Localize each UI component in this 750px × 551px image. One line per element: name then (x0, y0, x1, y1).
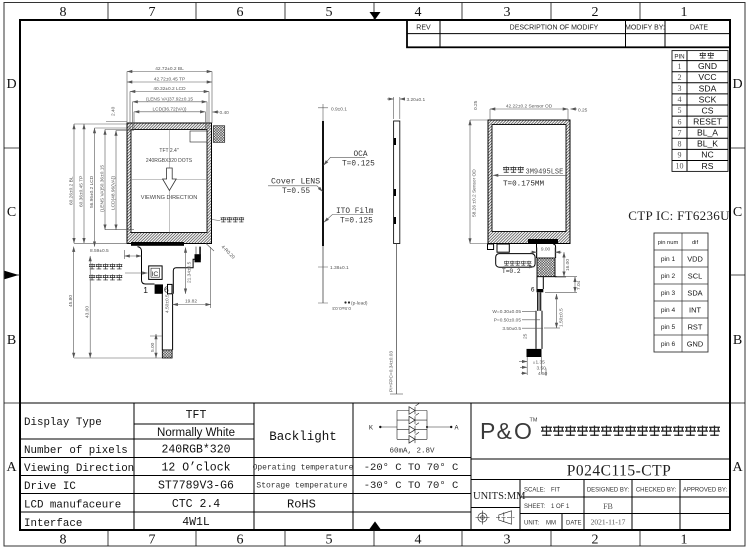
svg-text:2: 2 (592, 533, 599, 548)
svg-text:IC: IC (152, 271, 159, 278)
svg-text:4W1L: 4W1L (182, 516, 210, 529)
svg-text:0.5±0.03: 0.5±0.03 (332, 305, 351, 311)
svg-text:1 OF 1: 1 OF 1 (551, 504, 570, 510)
svg-text:A: A (455, 426, 459, 432)
svg-text:5: 5 (326, 5, 333, 20)
svg-text:0.25: 0.25 (473, 100, 479, 110)
svg-text:60mA, 2.8V: 60mA, 2.8V (389, 448, 435, 456)
svg-text:Display Type: Display Type (24, 417, 102, 429)
svg-text:42.22±0.2 Sensor OD: 42.22±0.2 Sensor OD (506, 103, 553, 109)
svg-text:12 O’clock: 12 O’clock (161, 462, 230, 475)
svg-text:3: 3 (504, 5, 511, 20)
svg-text:REV: REV (416, 25, 431, 32)
svg-text:DATE: DATE (566, 521, 582, 527)
svg-text:VCC: VCC (698, 72, 716, 82)
svg-text:-30° C TO 70° C: -30° C TO 70° C (364, 480, 459, 492)
svg-text:D: D (6, 77, 16, 92)
svg-text:0.40: 0.40 (220, 110, 230, 116)
svg-text:pin 3: pin 3 (661, 290, 676, 297)
svg-text:FIT: FIT (551, 488, 560, 494)
svg-text:21.34±0.5: 21.34±0.5 (187, 261, 193, 283)
svg-text:P=0.50±0.05: P=0.50±0.05 (494, 318, 522, 324)
svg-text:3.50: 3.50 (537, 365, 547, 371)
svg-text:1.50±0.5: 1.50±0.5 (559, 308, 565, 327)
svg-text:DATE: DATE (690, 25, 708, 32)
svg-text:T=0.125: T=0.125 (342, 161, 375, 169)
svg-text:LCD(36.72(VA)): LCD(36.72(VA)) (152, 106, 186, 112)
svg-text:BL_K: BL_K (697, 139, 718, 149)
svg-text:7: 7 (149, 5, 156, 20)
svg-text:DESCRIPTION OF MODIFY: DESCRIPTION OF MODIFY (510, 25, 599, 32)
svg-text:B: B (733, 333, 742, 348)
svg-text:INT: INT (689, 305, 701, 314)
svg-text:RoHS: RoHS (287, 498, 316, 512)
svg-text:GND: GND (698, 61, 717, 71)
svg-text:pin num: pin num (658, 240, 679, 246)
svg-text:56.96±0.2 LCD: 56.96±0.2 LCD (89, 175, 95, 208)
svg-text:8: 8 (678, 140, 682, 149)
svg-text:5.00: 5.00 (150, 342, 156, 352)
svg-text:VDD: VDD (687, 254, 703, 263)
svg-text:SCK: SCK (699, 94, 717, 104)
svg-text:P024C115-CTP: P024C115-CTP (567, 463, 671, 480)
svg-text:2: 2 (592, 5, 599, 20)
svg-text:5: 5 (678, 106, 682, 115)
svg-text:pin 1: pin 1 (661, 256, 676, 263)
svg-text:25: 25 (523, 333, 529, 339)
svg-text:BL_A: BL_A (697, 128, 718, 138)
svg-text:43.00: 43.00 (85, 306, 91, 318)
svg-text:5: 5 (326, 533, 333, 548)
svg-text:SCALE:: SCALE: (524, 488, 546, 494)
svg-text:B: B (7, 333, 16, 348)
svg-text:8: 8 (60, 533, 67, 548)
svg-text:4.50: 4.50 (538, 371, 548, 377)
svg-text:Normally White: Normally White (157, 427, 235, 439)
svg-text:SDA: SDA (699, 83, 717, 93)
svg-text:LCD(48.96(VA)): LCD(48.96(VA)) (111, 176, 117, 210)
svg-text:6: 6 (237, 5, 244, 20)
svg-text:T=0.55: T=0.55 (282, 188, 310, 196)
svg-text:1: 1 (678, 62, 682, 71)
svg-text:Viewing Direction: Viewing Direction (24, 463, 134, 475)
svg-text:3: 3 (678, 84, 682, 93)
svg-text:Interface: Interface (24, 518, 82, 530)
svg-text:0.9±0.1: 0.9±0.1 (331, 107, 347, 113)
svg-text:-20° C TO 70° C: -20° C TO 70° C (364, 462, 459, 474)
svg-text:NC: NC (701, 150, 713, 160)
svg-text:TFT: TFT (186, 409, 207, 422)
svg-text:1: 1 (681, 533, 688, 548)
svg-text:42.72±0.2 BL: 42.72±0.2 BL (155, 66, 184, 72)
svg-text:Drive IC: Drive IC (24, 481, 76, 493)
svg-text:240RGB*320: 240RGB*320 (161, 444, 230, 457)
svg-text:APPROVED BY:: APPROVED BY: (683, 488, 728, 494)
svg-text:Operating temperature: Operating temperature (253, 464, 354, 473)
svg-text:CTC 2.4: CTC 2.4 (172, 498, 220, 511)
svg-text:D: D (732, 77, 742, 92)
svg-text:RS: RS (702, 161, 714, 171)
svg-text:0.25: 0.25 (578, 107, 588, 113)
svg-text:60.26±0.2 BL: 60.26±0.2 BL (69, 176, 75, 205)
svg-text:4.50±0.5: 4.50±0.5 (165, 294, 171, 313)
svg-text:9.00: 9.00 (541, 247, 551, 253)
svg-text:C: C (733, 205, 742, 220)
svg-text:240RGBX320 DOTS: 240RGBX320 DOTS (146, 158, 193, 164)
svg-text:(LENS VA)50.36±0.15: (LENS VA)50.36±0.15 (100, 165, 106, 212)
svg-text:1.38±0.1: 1.38±0.1 (330, 265, 349, 271)
svg-text:SHEET:: SHEET: (524, 504, 545, 510)
svg-text:pin 4: pin 4 (661, 307, 676, 314)
svg-text:K: K (369, 426, 373, 432)
svg-text:A: A (6, 460, 17, 475)
svg-text:10: 10 (676, 162, 684, 171)
svg-text:CS: CS (702, 105, 714, 115)
svg-text:40.32±0.2 LCD: 40.32±0.2 LCD (153, 86, 186, 92)
svg-text:ST7789V3-G6: ST7789V3-G6 (158, 480, 234, 493)
svg-text:6: 6 (678, 117, 682, 126)
svg-text:7: 7 (149, 533, 156, 548)
svg-text:T=0.2: T=0.2 (502, 268, 521, 275)
svg-text:T=0.125: T=0.125 (340, 218, 373, 226)
svg-text:4: 4 (415, 5, 422, 20)
svg-text:2: 2 (678, 73, 682, 82)
svg-text:RESET: RESET (693, 117, 722, 127)
svg-text:Number of pixels: Number of pixels (24, 445, 128, 457)
svg-text:Storage temperature: Storage temperature (256, 482, 347, 491)
svg-text:GND: GND (687, 339, 703, 348)
svg-text:1: 1 (681, 5, 688, 20)
svg-text:4: 4 (415, 533, 422, 548)
svg-text:42.72±0.45 TP: 42.72±0.45 TP (154, 77, 185, 83)
svg-text:CHECKED BY:: CHECKED BY: (636, 488, 677, 494)
svg-text:RST: RST (688, 322, 703, 331)
svg-text:CTP IC: FT6236U: CTP IC: FT6236U (628, 208, 730, 223)
svg-text:LCD manufaceure: LCD manufaceure (24, 500, 121, 512)
svg-text:T=0.175MM: T=0.175MM (503, 181, 544, 189)
svg-text:P: P (480, 418, 495, 444)
svg-text:Cover LENS: Cover LENS (271, 177, 320, 186)
svg-text:7: 7 (678, 128, 682, 137)
svg-text:3.50±0.5: 3.50±0.5 (502, 326, 521, 332)
svg-text:MM: MM (546, 521, 556, 527)
svg-text:16.00: 16.00 (565, 259, 571, 271)
svg-text:TFT 2.4": TFT 2.4" (159, 148, 178, 154)
svg-text:pin 5: pin 5 (661, 324, 676, 331)
svg-text:6: 6 (237, 533, 244, 548)
svg-text:A: A (732, 460, 743, 475)
svg-text:dif: dif (692, 240, 699, 246)
svg-text:9: 9 (678, 151, 682, 160)
svg-text:3: 3 (504, 533, 511, 548)
svg-text:(LENS VA)37.92±0.15: (LENS VA)37.92±0.15 (146, 96, 193, 102)
svg-text:58.26 ±0.2 Sensor OD: 58.26 ±0.2 Sensor OD (472, 169, 478, 217)
svg-text:60.36±0.45 TP: 60.36±0.45 TP (79, 176, 85, 207)
svg-text:DESIGNED BY:: DESIGNED BY: (587, 488, 630, 494)
svg-text:C: C (7, 205, 16, 220)
svg-text:19.82: 19.82 (185, 299, 197, 305)
svg-text:OCA: OCA (354, 151, 368, 159)
svg-text:UNITS:MM: UNITS:MM (473, 491, 526, 502)
svg-text:FB: FB (603, 502, 613, 511)
svg-text:8.59±0.5: 8.59±0.5 (90, 248, 109, 254)
svg-text:&: & (497, 418, 512, 444)
svg-text:2021-11-17: 2021-11-17 (591, 518, 626, 527)
svg-text:pin 2: pin 2 (661, 273, 676, 280)
svg-text:8: 8 (60, 5, 67, 20)
svg-text:1.35: 1.35 (536, 360, 546, 366)
svg-text:TM: TM (530, 418, 538, 424)
svg-text:6: 6 (164, 285, 169, 295)
svg-text:(p-lead): (p-lead) (351, 301, 368, 307)
svg-text:W=0.30±0.05: W=0.30±0.05 (492, 309, 521, 315)
svg-text:7.04: 7.04 (576, 280, 582, 290)
svg-text:UNIT:: UNIT: (524, 521, 539, 527)
svg-text:SCL: SCL (688, 271, 702, 280)
svg-text:MODIFY BY:: MODIFY BY: (625, 25, 665, 32)
svg-text:PI+FPC=0.34±0.03: PI+FPC=0.34±0.03 (389, 351, 395, 392)
svg-text:1: 1 (143, 285, 148, 295)
svg-text:SDA: SDA (687, 288, 702, 297)
svg-text:pin 6: pin 6 (661, 341, 676, 348)
svg-text:VIEWING DIRECTION: VIEWING DIRECTION (141, 195, 198, 201)
svg-text:3.20±0.1: 3.20±0.1 (407, 97, 426, 103)
svg-text:45.80: 45.80 (68, 295, 74, 307)
svg-text:2.40: 2.40 (111, 106, 117, 116)
svg-text:6: 6 (531, 286, 535, 293)
svg-text:Backlight: Backlight (269, 430, 337, 444)
svg-text:PIN: PIN (674, 53, 684, 60)
svg-text:4: 4 (678, 95, 682, 104)
